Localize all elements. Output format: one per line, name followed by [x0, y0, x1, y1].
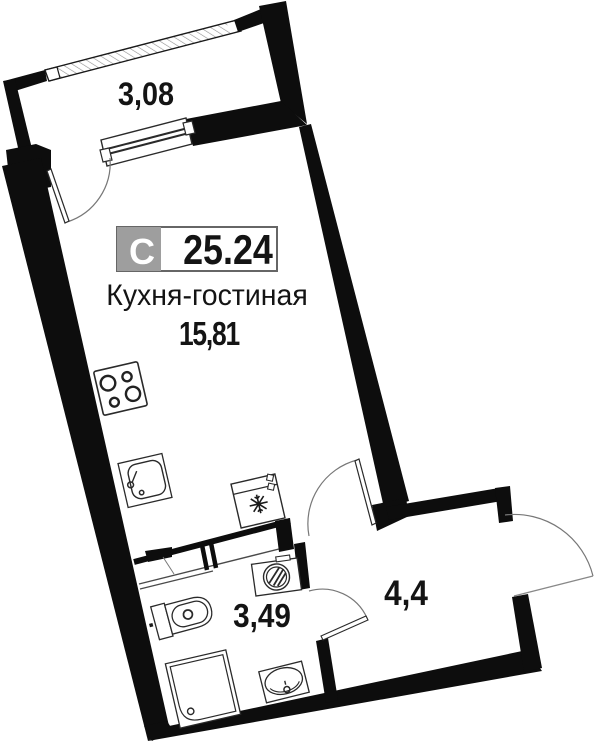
svg-text:4,4: 4,4	[384, 575, 428, 614]
svg-text:25.24: 25.24	[183, 227, 273, 273]
svg-text:3,08: 3,08	[118, 77, 174, 113]
svg-text:3,49: 3,49	[233, 598, 291, 635]
svg-text:15,81: 15,81	[179, 316, 240, 352]
svg-text:Кухня-гостиная: Кухня-гостиная	[106, 279, 308, 312]
svg-text:C: C	[129, 231, 155, 272]
